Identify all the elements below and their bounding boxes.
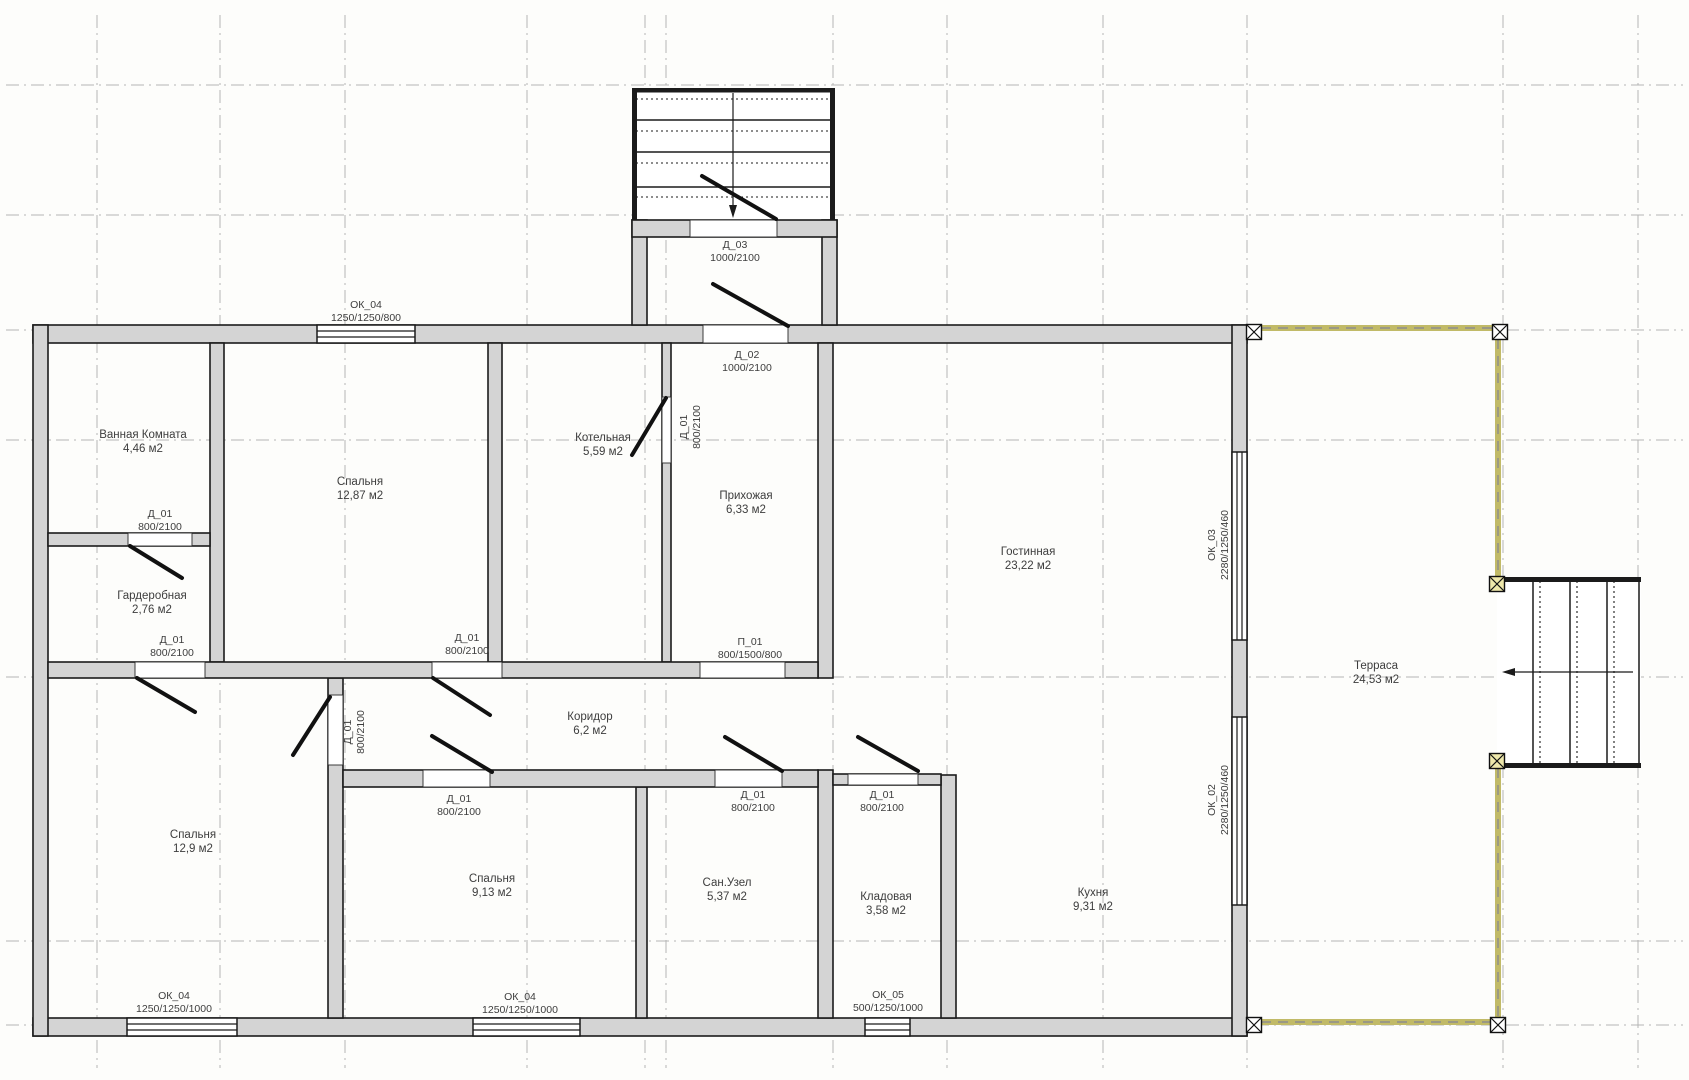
window-tag: ОК_022280/1250/460 <box>1206 765 1231 835</box>
tag-size: 1000/2100 <box>710 252 760 264</box>
wall <box>488 343 502 662</box>
door-tag: Д_01800/2100 <box>138 508 182 533</box>
door-opening <box>662 397 671 463</box>
room-area: 12,9 м2 <box>173 843 213 855</box>
wall <box>941 775 956 1018</box>
tag-code: Д_01 <box>342 720 354 745</box>
window <box>317 325 415 343</box>
tag-code: Д_03 <box>723 239 748 251</box>
tag-code: Д_02 <box>735 349 760 361</box>
room-label: Терраса24,53 м2 <box>1353 660 1399 686</box>
room-label: Спальня9,13 м2 <box>469 873 515 899</box>
floor-plan-drawing: Ванная Комната4,46 м2Гардеробная2,76 м2С… <box>0 0 1689 1080</box>
tag-code: ОК_03 <box>1206 529 1218 561</box>
tag-size: 800/2100 <box>445 645 489 657</box>
room-label: Котельная5,59 м2 <box>575 432 631 458</box>
wall <box>662 343 671 662</box>
tag-code: ОК_04 <box>504 991 536 1003</box>
tag-code: П_01 <box>737 636 762 648</box>
tag-code: Д_01 <box>455 632 480 644</box>
terrace-stairs-top-edge <box>1497 577 1641 582</box>
tag-size: 800/2100 <box>860 802 904 814</box>
tag-size: 800/2100 <box>437 806 481 818</box>
room-area: 2,76 м2 <box>132 604 172 616</box>
tag-size: 800/2100 <box>150 647 194 659</box>
door-leaf <box>433 678 490 715</box>
window <box>473 1018 580 1036</box>
door-opening <box>128 533 192 546</box>
wall <box>210 343 224 662</box>
room-label: Спальня12,87 м2 <box>337 476 383 502</box>
door-opening <box>848 774 918 785</box>
tag-code: ОК_04 <box>350 299 382 311</box>
tag-size: 1250/1250/1000 <box>482 1004 558 1016</box>
wall <box>818 343 833 678</box>
room-area: 12,87 м2 <box>337 490 383 502</box>
room-name: Котельная <box>575 432 631 444</box>
window <box>1232 717 1247 905</box>
door-tag: Д_031000/2100 <box>710 239 760 264</box>
room-name: Спальня <box>469 873 515 885</box>
room-area: 5,37 м2 <box>707 891 747 903</box>
door-tag: Д_01800/2100 <box>731 789 775 814</box>
room-name: Кухня <box>1078 887 1109 899</box>
tag-code: Д_01 <box>447 793 472 805</box>
door-opening <box>328 695 343 765</box>
door-leaf <box>858 737 918 771</box>
tag-code: Д_01 <box>160 634 185 646</box>
door-leaf <box>632 398 666 455</box>
room-area: 6,2 м2 <box>573 725 606 737</box>
room-name: Терраса <box>1354 660 1399 672</box>
door-leaf <box>130 546 182 578</box>
room-area: 3,58 м2 <box>866 905 906 917</box>
room-label: Кухня9,31 м2 <box>1073 887 1113 913</box>
wall <box>33 325 48 1036</box>
window <box>1232 452 1247 640</box>
room-area: 5,59 м2 <box>583 446 623 458</box>
room-label: Спальня12,9 м2 <box>170 829 216 855</box>
door-opening <box>135 662 205 678</box>
room-name: Гардеробная <box>117 590 187 602</box>
tag-size: 1000/2100 <box>722 362 772 374</box>
tag-size: 800/2100 <box>731 802 775 814</box>
room-area: 24,53 м2 <box>1353 674 1399 686</box>
room-label: Гардеробная2,76 м2 <box>117 590 187 616</box>
window <box>127 1018 237 1036</box>
porch-stairs-right-edge <box>830 88 835 220</box>
room-name: Прихожая <box>719 490 772 502</box>
tag-code: ОК_02 <box>1206 784 1218 816</box>
window-tag: ОК_032280/1250/460 <box>1206 510 1231 580</box>
room-name: Гостинная <box>1001 546 1056 558</box>
room-name: Коридор <box>567 711 612 723</box>
door-tag: Д_01800/2100 <box>150 634 194 659</box>
wall <box>1232 325 1247 1036</box>
door-leaf <box>293 697 330 755</box>
door-opening <box>715 770 782 787</box>
tag-size: 1250/1250/800 <box>331 312 401 324</box>
terrace-stairs-bottom-edge <box>1497 763 1641 768</box>
room-name: Сан.Узел <box>703 877 752 889</box>
tag-code: ОК_05 <box>872 989 904 1001</box>
door-tag: Д_01800/2100 <box>860 789 904 814</box>
door-leaf <box>713 284 788 326</box>
room-label: Гостинная23,22 м2 <box>1001 546 1056 572</box>
door-tag: Д_01800/2100 <box>342 710 367 754</box>
window-tag: ОК_041250/1250/1000 <box>482 991 558 1016</box>
tag-size: 500/1250/1000 <box>853 1002 923 1014</box>
tag-size: 2280/1250/460 <box>1219 510 1231 580</box>
door-leaf <box>725 737 782 771</box>
door-opening <box>690 220 777 237</box>
tag-size: 800/2100 <box>355 710 367 754</box>
tag-code: Д_01 <box>741 789 766 801</box>
door-opening <box>423 770 490 787</box>
door-tag: Д_01800/2100 <box>445 632 489 657</box>
room-area: 23,22 м2 <box>1005 560 1051 572</box>
porch-stairs-top-edge <box>632 88 835 93</box>
room-label: Кладовая3,58 м2 <box>860 891 912 917</box>
tag-code: Д_01 <box>148 508 173 520</box>
tag-code: Д_01 <box>678 415 690 440</box>
passage-tag: П_01800/1500/800 <box>718 636 782 661</box>
room-label: Прихожая6,33 м2 <box>719 490 772 516</box>
room-area: 6,33 м2 <box>726 504 766 516</box>
porch-stairs-left-edge <box>632 88 637 220</box>
door-leaf <box>432 736 492 772</box>
floor-plan-canvas: Ванная Комната4,46 м2Гардеробная2,76 м2С… <box>0 0 1689 1080</box>
room-name: Кладовая <box>860 891 912 903</box>
window-tag: ОК_05500/1250/1000 <box>853 989 923 1014</box>
wall <box>818 770 833 1018</box>
door-opening <box>700 662 785 678</box>
room-area: 9,13 м2 <box>472 887 512 899</box>
door-leaf <box>137 678 195 712</box>
tag-size: 800/2100 <box>138 521 182 533</box>
wall <box>636 787 647 1018</box>
tag-code: Д_01 <box>870 789 895 801</box>
room-name: Ванная Комната <box>99 429 187 441</box>
tag-size: 800/1500/800 <box>718 649 782 661</box>
door-tag: Д_021000/2100 <box>722 349 772 374</box>
room-area: 9,31 м2 <box>1073 901 1113 913</box>
door-tag: Д_01800/2100 <box>678 405 703 449</box>
room-label: Ванная Комната4,46 м2 <box>99 429 187 455</box>
room-name: Спальня <box>337 476 383 488</box>
tag-size: 800/2100 <box>691 405 703 449</box>
door-tag: Д_01800/2100 <box>437 793 481 818</box>
window-tag: ОК_041250/1250/1000 <box>136 990 212 1015</box>
tag-size: 2280/1250/460 <box>1219 765 1231 835</box>
door-opening <box>703 325 788 343</box>
tag-size: 1250/1250/1000 <box>136 1003 212 1015</box>
window-tag: ОК_041250/1250/800 <box>331 299 401 324</box>
tag-code: ОК_04 <box>158 990 190 1002</box>
window <box>865 1018 910 1036</box>
room-area: 4,46 м2 <box>123 443 163 455</box>
wall <box>33 325 1247 343</box>
room-label: Сан.Узел5,37 м2 <box>703 877 752 903</box>
door-opening <box>432 662 502 678</box>
room-label: Коридор6,2 м2 <box>567 711 612 737</box>
room-name: Спальня <box>170 829 216 841</box>
